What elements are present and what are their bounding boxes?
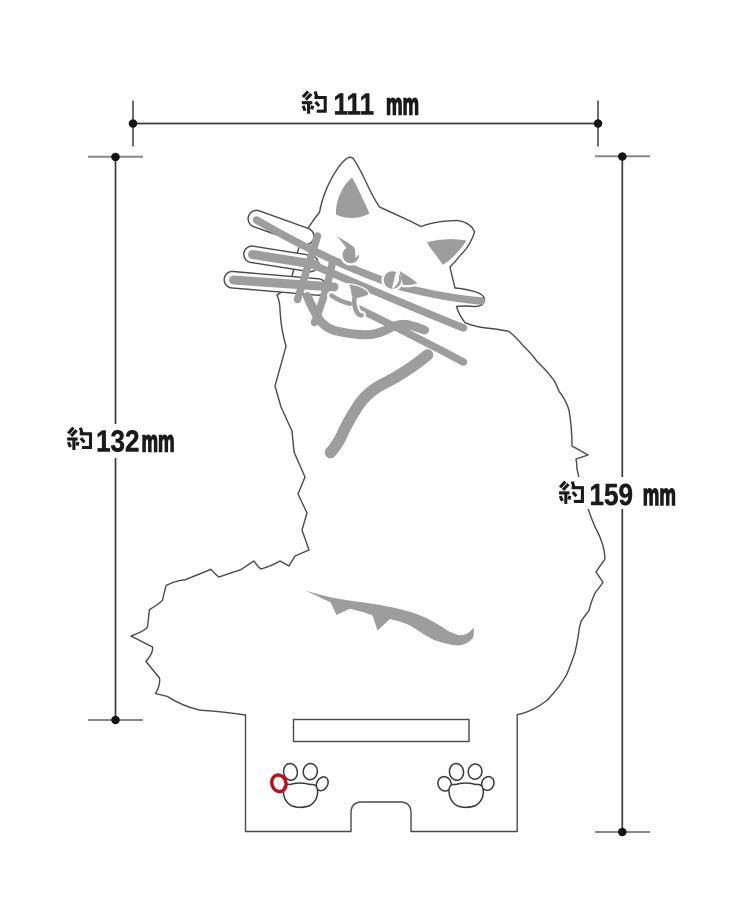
svg-text:132: 132 xyxy=(96,424,139,459)
svg-text:mm: mm xyxy=(386,88,419,122)
svg-text:mm: mm xyxy=(643,478,676,512)
svg-text:111: 111 xyxy=(334,87,375,122)
svg-text:159: 159 xyxy=(590,478,633,513)
svg-text:mm: mm xyxy=(142,425,175,459)
